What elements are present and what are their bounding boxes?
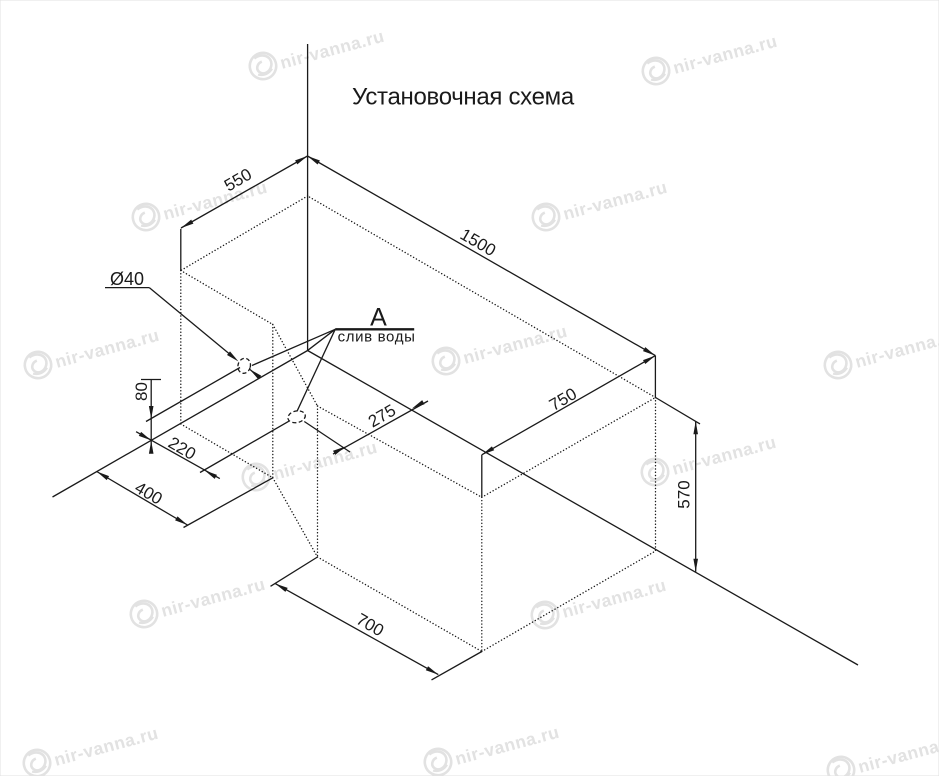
svg-text:570: 570: [675, 480, 694, 508]
svg-text:Ø40: Ø40: [110, 269, 144, 289]
svg-text:A: A: [370, 304, 387, 332]
svg-text:80: 80: [132, 382, 151, 401]
svg-text:слив воды: слив воды: [338, 329, 416, 346]
svg-text:Установочная схема: Установочная схема: [352, 84, 575, 111]
